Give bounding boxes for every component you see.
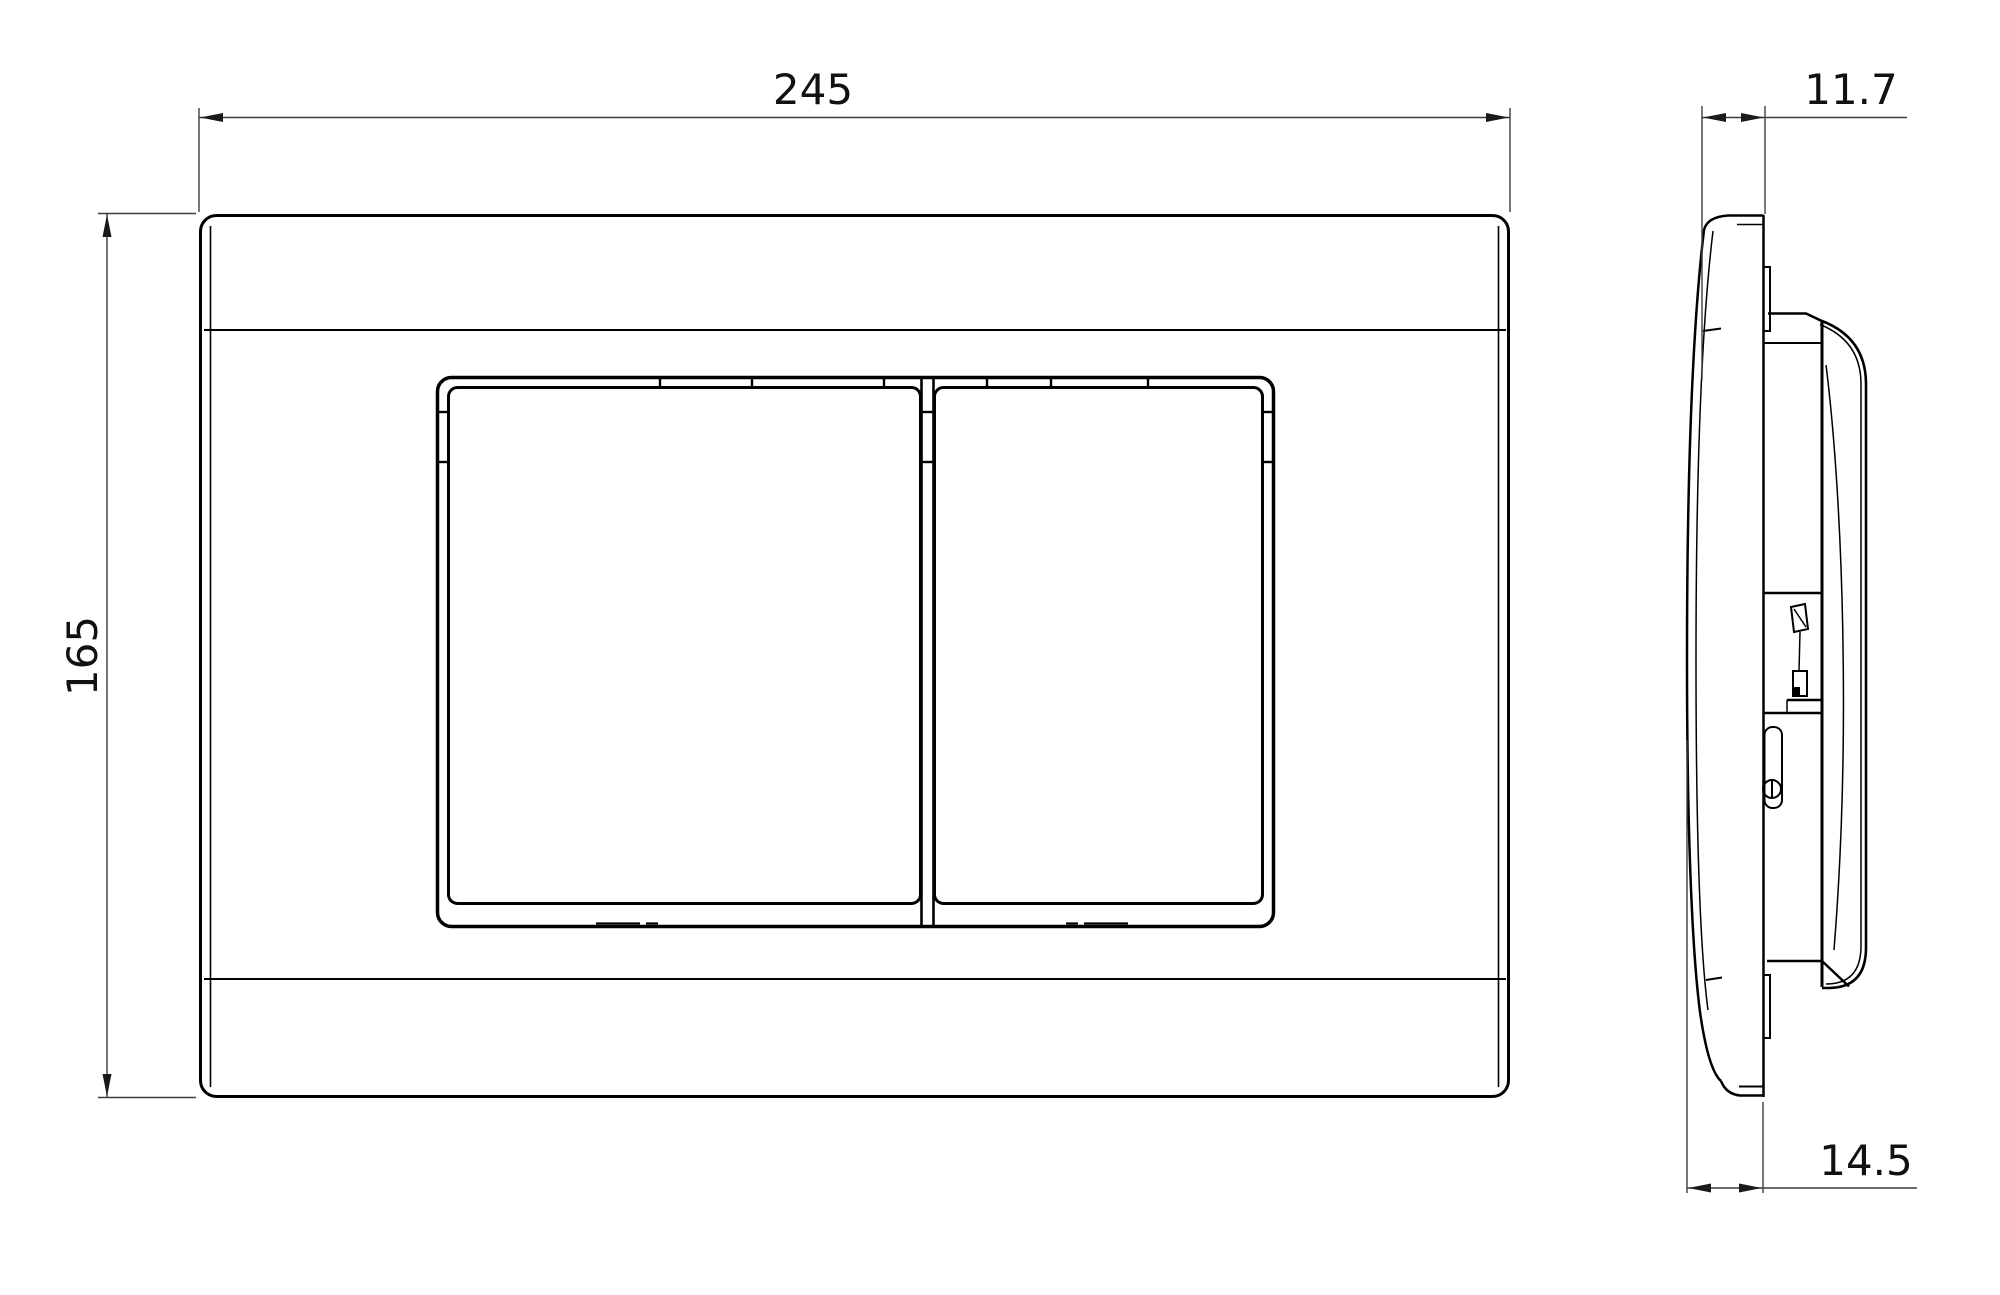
arrowhead-right — [1741, 113, 1764, 122]
button-side-clip-notches — [437, 412, 1274, 462]
front-curve-tick-top — [1703, 329, 1721, 332]
technical-drawing-flush-plate: 245 165 11.7 14.5 — [0, 0, 2000, 1295]
front-curve-tick-bottom — [1706, 978, 1722, 981]
plate-outline — [201, 216, 1509, 1097]
dim-label-width: 245 — [773, 65, 853, 114]
front-view — [201, 216, 1509, 1097]
arrowhead-right — [1739, 1184, 1762, 1193]
plate-top-cap — [1704, 216, 1764, 231]
plate-front-face-inner-curve — [1696, 231, 1713, 1010]
button-small-outline — [935, 388, 1263, 904]
housing-outer-outline — [1768, 314, 1866, 989]
button-opening-outline — [438, 378, 1274, 927]
button-large-outline — [449, 388, 921, 904]
plate-front-face-curve — [1687, 230, 1721, 1081]
dimension-height: 165 — [58, 214, 196, 1098]
dim-label-height: 165 — [58, 616, 107, 696]
arrowhead-left — [1688, 1184, 1711, 1193]
flush-buttons — [437, 377, 1274, 927]
housing-inner-outline — [1820, 325, 1861, 985]
side-view — [1687, 215, 1866, 1097]
plate-bottom-cap — [1721, 1081, 1764, 1096]
dim-label-depth-bottom: 14.5 — [1819, 1136, 1913, 1185]
drawing-svg: 245 165 11.7 14.5 — [0, 0, 2000, 1295]
dimension-width: 245 — [199, 65, 1510, 212]
arrowhead-left — [200, 113, 223, 122]
dimension-depth-top: 11.7 — [1702, 65, 1907, 380]
housing-inner-curve — [1826, 365, 1843, 950]
arrowhead-left — [1703, 113, 1726, 122]
arrowhead-top — [103, 215, 112, 238]
latch-hook-bottom-fill — [1793, 687, 1800, 696]
latch-connector — [1799, 632, 1800, 671]
housing-latch-detail — [1764, 593, 1823, 713]
arrowhead-bottom — [103, 1074, 112, 1097]
side-plate-profile — [1687, 215, 1764, 1097]
dimension-depth-bottom: 14.5 — [1687, 740, 1917, 1193]
dim-label-depth-top: 11.7 — [1804, 65, 1898, 114]
arrowhead-right — [1486, 113, 1509, 122]
side-housing — [1763, 314, 1866, 989]
